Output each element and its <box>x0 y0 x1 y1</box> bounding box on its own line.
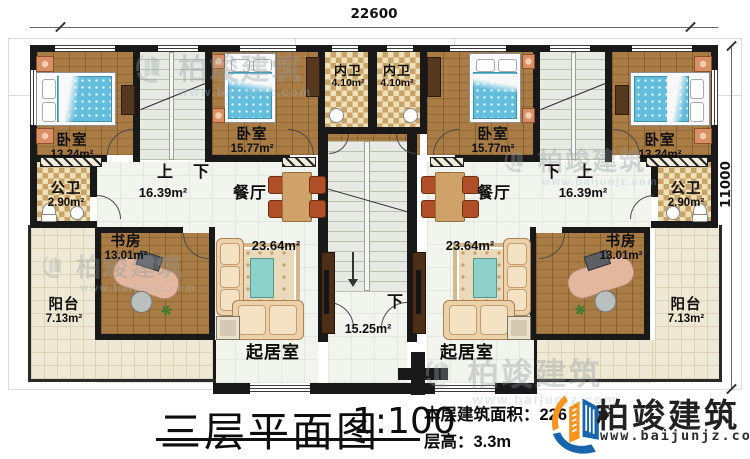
room-label-bath-inner-r: 内卫 4.10m² <box>380 64 413 89</box>
pillow <box>498 59 517 72</box>
wall <box>213 383 250 394</box>
title-underline <box>156 438 420 441</box>
room-name: 卧室 <box>639 134 682 149</box>
dining-table <box>435 172 465 222</box>
plant: ✻ <box>573 301 588 320</box>
wall <box>30 221 97 228</box>
stair-center-rail <box>364 141 370 291</box>
stair-label-down: 下 <box>544 158 560 182</box>
nightstand <box>36 56 54 72</box>
room-label-dining-r: 餐厅 <box>477 186 511 203</box>
side-table <box>216 316 240 340</box>
sofa-cushion <box>449 305 477 335</box>
wardrobe <box>121 85 135 115</box>
bed <box>36 72 116 126</box>
side-table <box>507 316 531 340</box>
company-logo-url: www.baijunjz.com <box>600 428 750 444</box>
room-area: 23.64m² <box>252 239 300 253</box>
sofa-cushion <box>220 266 240 288</box>
sofa <box>443 300 515 340</box>
pillow <box>690 79 704 99</box>
plan-title: 三层平面图 <box>160 398 380 458</box>
pillow <box>690 102 704 122</box>
floor-height-line: 层高：3.3m <box>424 428 511 452</box>
sink <box>329 108 344 123</box>
bed <box>224 53 276 123</box>
sofa-cushion <box>238 305 266 335</box>
dining-table <box>282 172 312 222</box>
stair-arrow-line <box>352 252 354 280</box>
wall-pier <box>411 352 425 395</box>
room-label-bedroom-tl: 卧室 13.24m² <box>51 134 94 161</box>
sofa-cushion <box>269 305 297 335</box>
wall <box>213 340 216 383</box>
room-label-bath-public-l: 公卫 2.90m² <box>48 182 84 209</box>
hatch-sill <box>430 157 464 167</box>
coffee-table <box>473 258 497 298</box>
stair-label-up: 上 <box>577 158 593 182</box>
wall <box>534 340 537 383</box>
bed <box>469 53 521 123</box>
room-name: 卧室 <box>472 128 515 143</box>
stair-label-up: 上 <box>157 158 173 182</box>
room-name: 卧室 <box>231 128 274 143</box>
area-label-stair-hall: 15.25m² <box>345 323 392 336</box>
wall <box>95 227 183 233</box>
floor-balcony-r-strip <box>535 340 655 379</box>
nightstand <box>522 54 535 69</box>
window <box>550 45 590 52</box>
window <box>387 45 413 52</box>
wardrobe <box>615 85 629 115</box>
wall <box>325 127 368 134</box>
room-name: 起居室 <box>440 344 494 362</box>
wardrobe <box>306 57 320 97</box>
room-area: 4.10m² <box>380 78 413 89</box>
parapet <box>28 379 216 382</box>
floor-height-label: 层高： <box>424 433 474 451</box>
pillow <box>42 102 56 122</box>
room-label-bedroom-tl2: 卧室 15.77m² <box>231 128 274 155</box>
wall <box>455 155 533 162</box>
room-name: 餐厅 <box>233 186 267 203</box>
sink <box>403 108 418 123</box>
wardrobe <box>427 57 441 97</box>
room-name: 内卫 <box>331 64 364 78</box>
parapet <box>719 225 722 382</box>
room-name: 卧室 <box>51 134 94 149</box>
room-area: 7.13m² <box>46 313 82 325</box>
room-label-balcony-r: 阳台 7.13m² <box>668 298 704 325</box>
room-label-bath-public-r: 公卫 2.90m² <box>668 182 704 209</box>
coffee-table <box>250 258 274 298</box>
floor-height-value: 3.3m <box>474 433 512 451</box>
room-area: 4.10m² <box>331 78 364 89</box>
room-area: 7.13m² <box>668 313 704 325</box>
room-name: 阳台 <box>668 298 704 313</box>
wall <box>530 334 650 340</box>
room-area: 2.90m² <box>48 197 84 209</box>
wall <box>95 227 101 340</box>
bed-sheet <box>226 74 274 92</box>
room-label-study-l: 书房 13.01m² <box>105 235 148 262</box>
wall <box>95 334 215 340</box>
pillow <box>253 59 272 72</box>
plant: ✻ <box>159 302 174 321</box>
dim-top-width: 22600 <box>351 6 398 22</box>
wall <box>205 45 212 162</box>
sofa-cushion <box>480 305 508 335</box>
area-label-living-r: 23.64m² <box>446 239 494 253</box>
window <box>250 385 310 392</box>
sofa-cushion <box>507 243 527 265</box>
window <box>332 45 358 52</box>
hatch-sill <box>282 157 316 167</box>
room-label-bedroom-tr2: 卧室 15.77m² <box>472 128 515 155</box>
nightstand <box>694 128 712 144</box>
wall <box>368 45 377 134</box>
floor-area-label: 本层建筑面积： <box>424 406 540 424</box>
room-name: 公卫 <box>668 182 704 197</box>
wall <box>605 45 612 162</box>
dining-chair <box>309 200 326 218</box>
room-area: 13.24m² <box>639 149 682 161</box>
parapet <box>534 379 722 382</box>
sofa <box>232 300 304 340</box>
room-area: 15.25m² <box>345 323 392 336</box>
floor-balcony-l-strip <box>95 340 215 379</box>
room-name: 起居室 <box>246 344 300 362</box>
stair-arrow-head <box>348 279 358 287</box>
tv <box>416 270 421 314</box>
area-label-hall-r: 16.39m² <box>559 186 607 200</box>
wall <box>651 221 718 228</box>
room-area: 13.01m² <box>105 250 148 262</box>
room-area: 13.24m² <box>51 149 94 161</box>
window <box>711 70 718 125</box>
parapet <box>28 225 31 382</box>
wall <box>212 155 290 162</box>
tv <box>324 270 329 314</box>
nightstand <box>212 54 225 69</box>
area-label-living-l: 23.64m² <box>252 239 300 253</box>
wall <box>209 227 215 340</box>
room-label-living-r: 起居室 <box>440 344 494 362</box>
dining-chair <box>309 176 326 194</box>
area-label-hall-l: 16.39m² <box>139 186 187 200</box>
toilet-tank <box>692 214 708 222</box>
pillow <box>231 59 250 72</box>
room-area: 16.39m² <box>139 186 187 200</box>
room-name: 书房 <box>105 235 148 250</box>
room-name: 餐厅 <box>477 186 511 203</box>
bed-sheet <box>667 74 687 124</box>
pillow <box>476 59 495 72</box>
wall <box>651 162 658 197</box>
room-label-living-l: 起居室 <box>246 344 300 362</box>
room-area: 15.77m² <box>231 143 274 155</box>
room-label-bedroom-tr: 卧室 13.24m² <box>639 134 682 161</box>
wall <box>495 383 537 394</box>
window <box>55 45 115 52</box>
room-name: 公卫 <box>48 182 84 197</box>
room-name: 阳台 <box>46 298 82 313</box>
sofa-cushion <box>220 243 240 265</box>
bed-sheet <box>59 74 79 124</box>
pillow <box>42 79 56 99</box>
room-area: 16.39m² <box>559 186 607 200</box>
floor-plan-canvas: 22600 11000 <box>0 0 750 459</box>
room-label-bath-inner-l: 内卫 4.10m² <box>331 64 364 89</box>
window <box>450 45 506 52</box>
wall <box>90 162 97 197</box>
dim-line-top <box>30 27 718 28</box>
room-area: 23.64m² <box>446 239 494 253</box>
toilet-tank <box>41 214 57 222</box>
nightstand <box>522 108 535 123</box>
sofa-cushion <box>507 266 527 288</box>
dim-right-height: 11000 <box>718 161 734 208</box>
window <box>435 385 495 392</box>
room-area: 2.90m² <box>668 197 704 209</box>
bed-sheet <box>471 74 519 92</box>
stair-right-rail <box>571 52 576 160</box>
window <box>240 45 296 52</box>
room-area: 15.77m² <box>472 143 515 155</box>
stair-label-down: 下 <box>193 158 209 182</box>
dim-line-right <box>731 45 732 389</box>
wall <box>562 227 650 233</box>
room-label-study-r: 书房 13.01m² <box>600 235 643 262</box>
nightstand <box>212 108 225 123</box>
nightstand <box>694 56 712 72</box>
window <box>158 45 198 52</box>
bed <box>630 72 710 126</box>
room-label-dining-l: 餐厅 <box>233 186 267 203</box>
wall <box>377 127 420 134</box>
wall <box>644 227 650 340</box>
room-name: 内卫 <box>380 64 413 78</box>
stair-label-center-down: 下 <box>387 288 403 312</box>
room-area: 13.01m² <box>600 250 643 262</box>
room-label-balcony-l: 阳台 7.13m² <box>46 298 82 325</box>
window <box>632 45 692 52</box>
stair-left-rail <box>169 52 174 160</box>
room-name: 书房 <box>600 235 643 250</box>
wall <box>420 45 427 134</box>
